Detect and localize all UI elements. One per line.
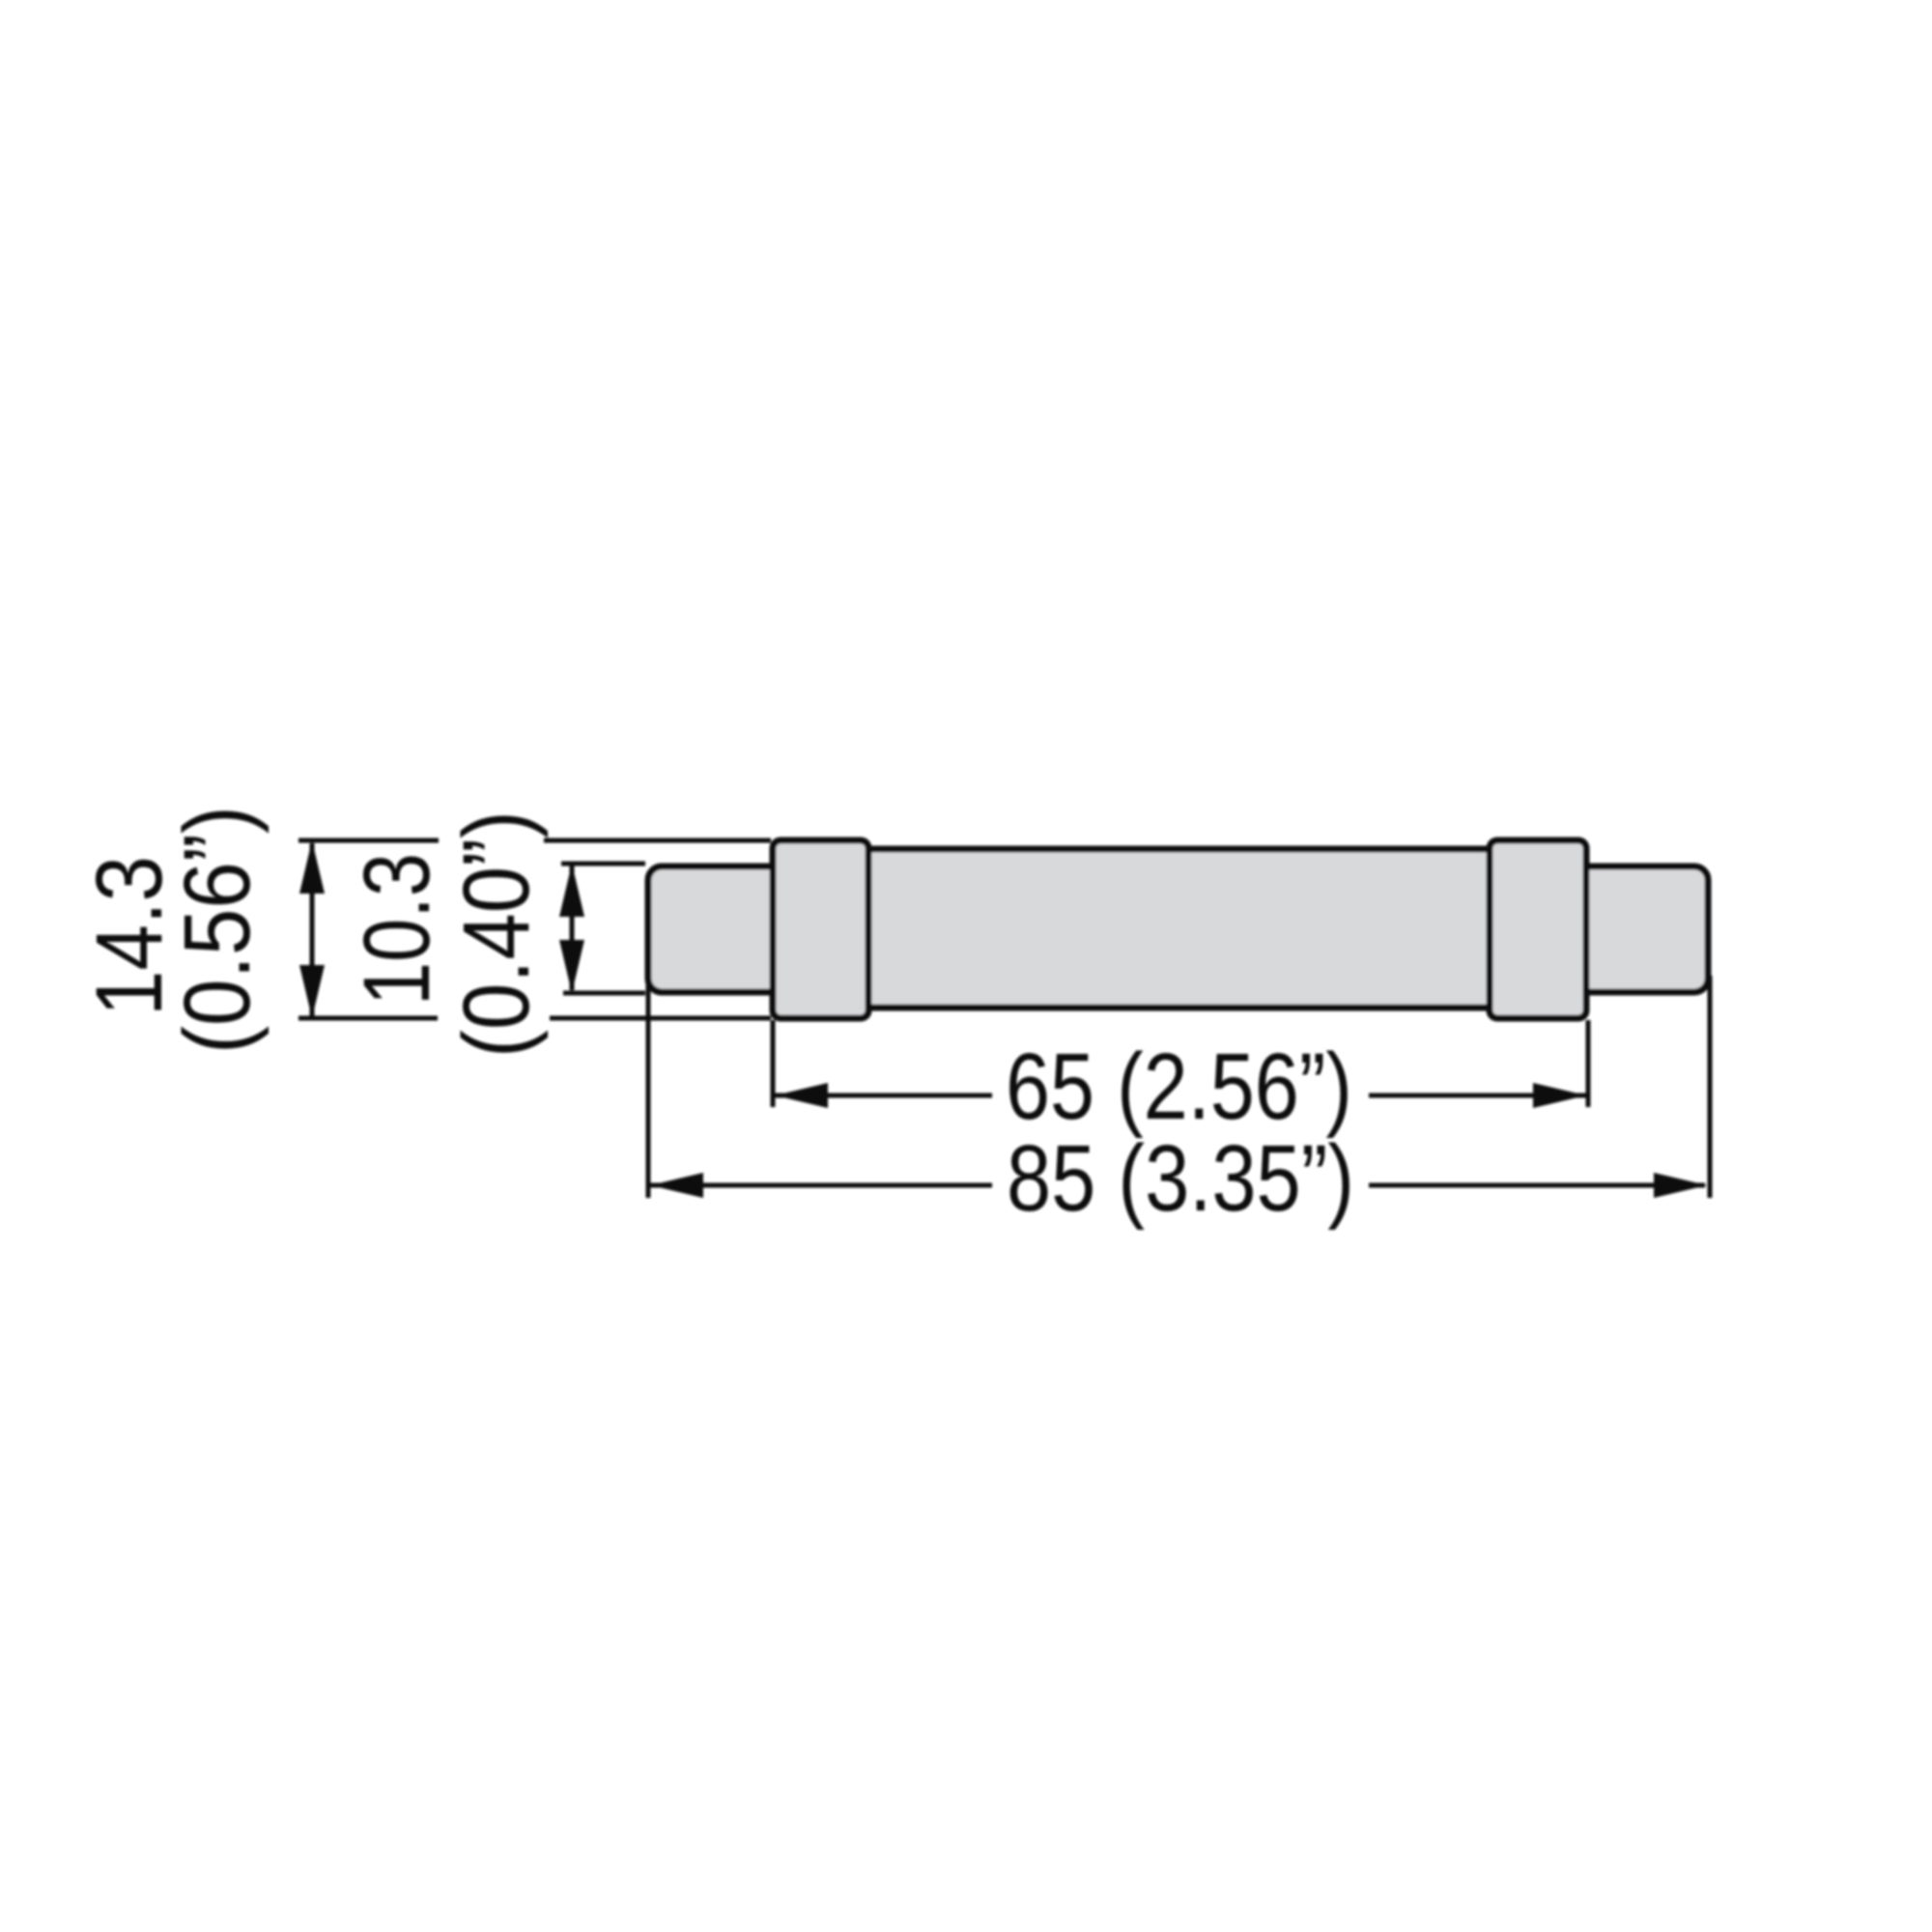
svg-text:85 (3.35”): 85 (3.35”): [1007, 1125, 1354, 1231]
svg-text:(0.40”): (0.40”): [443, 810, 549, 1058]
svg-text:10.3: 10.3: [344, 853, 449, 1006]
svg-text:(0.56”): (0.56”): [164, 806, 270, 1054]
svg-text:65 (2.56”): 65 (2.56”): [1006, 1034, 1352, 1139]
